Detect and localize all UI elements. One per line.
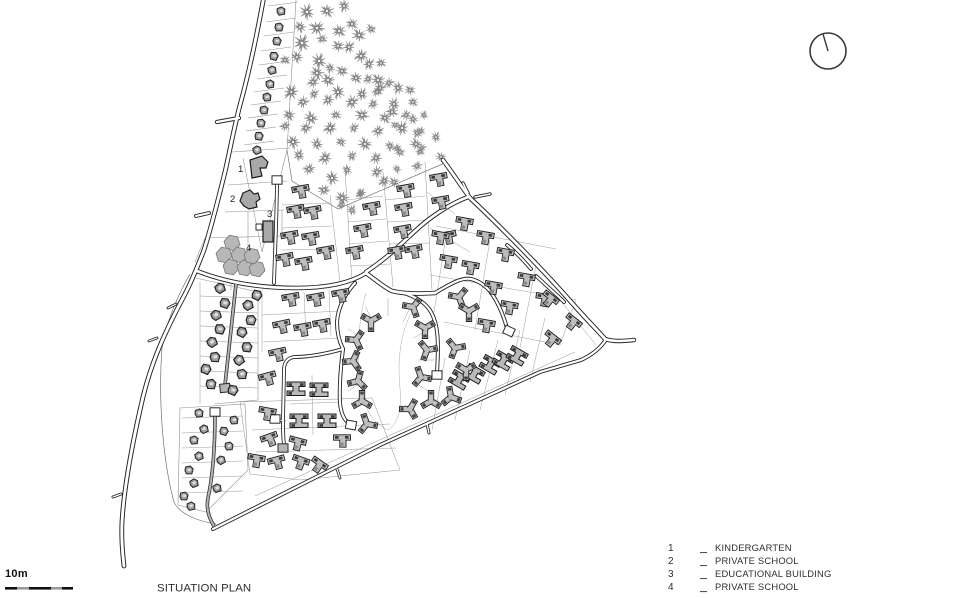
svg-text:3: 3 — [267, 209, 272, 220]
svg-text:1: 1 — [668, 543, 674, 554]
svg-text:2: 2 — [230, 194, 235, 205]
svg-text:10m: 10m — [5, 568, 28, 580]
svg-text:4: 4 — [246, 243, 251, 254]
svg-text:PRIVATE SCHOOL: PRIVATE SCHOOL — [715, 555, 799, 566]
svg-text:SITUATION PLAN: SITUATION PLAN — [157, 583, 251, 595]
svg-text:EDUCATIONAL BUILDING: EDUCATIONAL BUILDING — [715, 568, 832, 579]
svg-text:4: 4 — [668, 582, 674, 593]
svg-text:1: 1 — [238, 164, 243, 175]
svg-text:2: 2 — [668, 556, 674, 567]
svg-text:PRIVATE SCHOOL: PRIVATE SCHOOL — [715, 581, 799, 592]
svg-text:KINDERGARTEN: KINDERGARTEN — [715, 542, 792, 553]
svg-text:3: 3 — [668, 569, 674, 580]
